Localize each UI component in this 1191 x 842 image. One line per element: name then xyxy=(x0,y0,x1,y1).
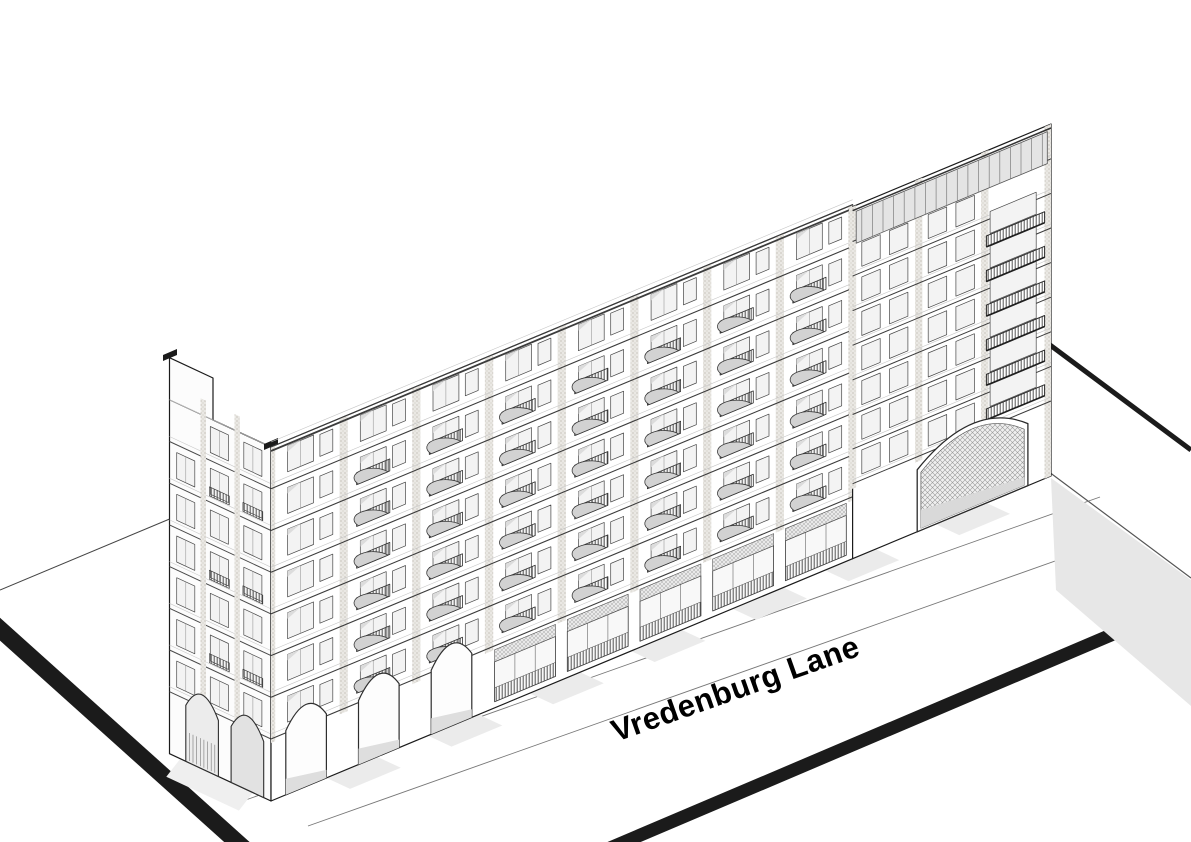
end-gable-facade xyxy=(163,349,278,801)
drawing-canvas: Vredenburg Lane xyxy=(0,0,1191,842)
axonometric-cutaway-drawing: Vredenburg Lane xyxy=(0,0,1191,842)
